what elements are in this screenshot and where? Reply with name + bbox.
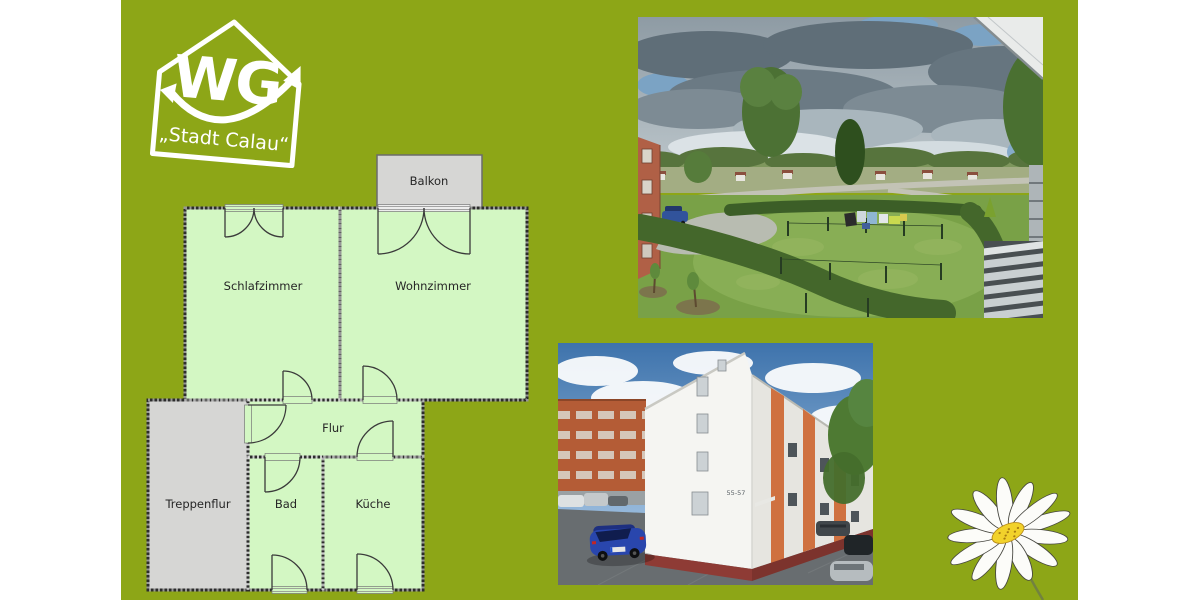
room-label-balkon: Balkon xyxy=(410,174,449,188)
room-treppenflur xyxy=(148,400,248,590)
room-schlafzimmer xyxy=(185,208,340,400)
logo-house: WG „Stadt Calau“ xyxy=(152,18,305,166)
flyer-background: WG „Stadt Calau“ Balkon xyxy=(121,0,1078,600)
balcony-railing xyxy=(976,241,1043,318)
left-building xyxy=(638,137,660,279)
room-label-schlafzimmer: Schlafzimmer xyxy=(224,279,303,293)
wg-logo: WG „Stadt Calau“ xyxy=(150,18,310,168)
room-label-treppenflur: Treppenflur xyxy=(164,497,230,511)
daisy-illustration xyxy=(935,470,1078,600)
daisy-flower xyxy=(935,470,1078,600)
room-label-wohnzimmer: Wohnzimmer xyxy=(395,279,471,293)
building-photo: 55-57 xyxy=(558,343,873,585)
floor-plan: Balkon xyxy=(146,150,532,595)
flyer-canvas: WG „Stadt Calau“ Balkon xyxy=(0,0,1200,600)
house-number: 55-57 xyxy=(727,489,746,497)
neighbor-building xyxy=(558,399,646,505)
room-bad xyxy=(248,457,323,590)
room-label-flur: Flur xyxy=(322,421,344,435)
balcony-view-photo xyxy=(638,17,1043,318)
room-label-bad: Bad xyxy=(275,497,297,511)
room-kueche xyxy=(323,457,423,590)
room-label-kueche: Küche xyxy=(356,497,391,511)
room-balkon: Balkon xyxy=(377,155,482,208)
